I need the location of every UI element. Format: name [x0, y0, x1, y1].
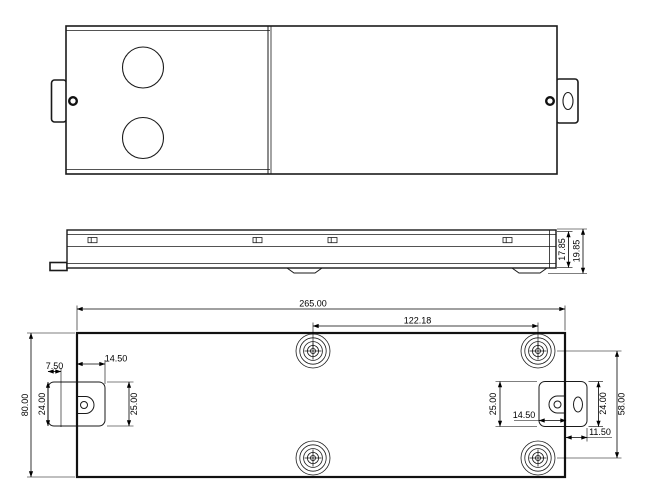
dim-label-58-00: 58.00 [617, 393, 627, 416]
top-right-mounting-ear [556, 79, 578, 123]
right-oval-slot [574, 397, 583, 412]
side-left-tab [50, 263, 67, 271]
top-view [52, 26, 579, 174]
right-keyhole-hole [554, 401, 561, 408]
dim-label-19-85: 19.85 [572, 240, 582, 263]
side-body-outline [67, 230, 556, 268]
dim-label-17-85: 17.85 [557, 238, 567, 261]
dim-foot-spacing-y: 58.00 [557, 351, 627, 458]
dim-right-ear-outer-height: 24.00 [589, 382, 609, 427]
foot-bottom-right [521, 441, 555, 475]
drawing-canvas: 17.85 19.85 [0, 0, 648, 491]
dim-side-body-height: 17.85 [557, 232, 573, 268]
left-keyhole-hole [81, 402, 88, 409]
left-keyhole-slot [77, 397, 94, 414]
side-foot-right [512, 268, 547, 273]
dim-right-slot-offset: 11.50 [566, 427, 612, 442]
dim-label-265-00: 265.00 [299, 299, 327, 309]
dim-label-11-50: 11.50 [589, 427, 611, 437]
bottom-right-mounting-ear [539, 382, 587, 427]
technical-drawing-page: 17.85 19.85 [0, 0, 648, 491]
right-keyhole-slot [549, 396, 566, 413]
dim-label-14-50-left: 14.50 [105, 354, 128, 364]
foot-bottom-left [296, 441, 330, 475]
dim-label-24-00-right: 24.00 [598, 392, 608, 415]
dim-foot-spacing-x: 122.18 [313, 316, 538, 349]
dim-left-ear-inner-height: 25.00 [107, 382, 139, 426]
dim-label-7-50: 7.50 [46, 361, 64, 371]
dim-label-14-50-right: 14.50 [513, 410, 536, 420]
side-foot-left [287, 268, 322, 273]
top-body-outline [66, 26, 557, 174]
side-view: 17.85 19.85 [50, 229, 587, 274]
dim-left-ear-depth: 14.50 [77, 354, 127, 385]
dim-label-80-00: 80.00 [20, 394, 30, 417]
dim-label-25-00-left: 25.00 [129, 393, 139, 416]
bottom-view: 265.00 122.18 80.00 24.00 7.50 14.50 [20, 299, 627, 478]
top-left-mounting-ear [52, 80, 67, 122]
dim-label-25-00-right: 25.00 [488, 393, 498, 416]
dim-label-122-18: 122.18 [404, 316, 432, 326]
dim-left-ear-outer-height: 24.00 [37, 382, 48, 426]
dim-label-24-00-left: 24.00 [37, 393, 47, 416]
